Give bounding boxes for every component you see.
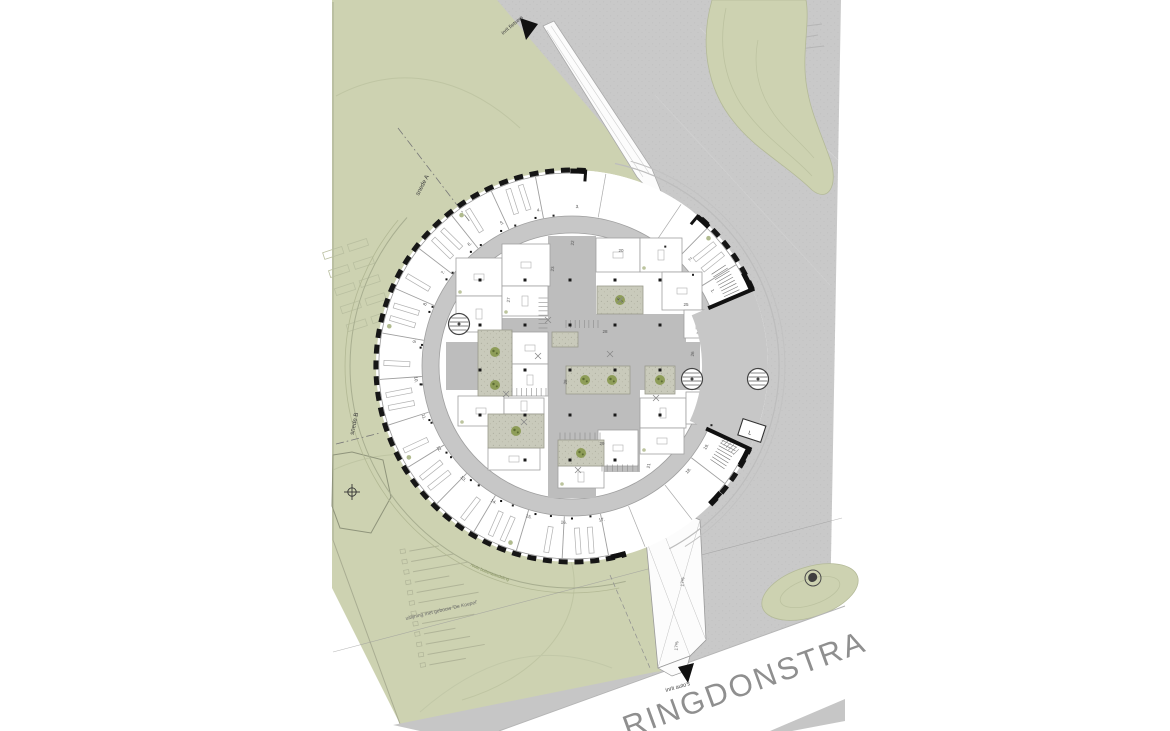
door-dot [535, 217, 537, 219]
core-room-number: 26 [690, 351, 695, 357]
corridor-door-dot [553, 215, 555, 217]
core-room [640, 238, 682, 272]
plant [387, 324, 392, 329]
gap-wall [585, 169, 586, 181]
ring-room-number: 3. [576, 204, 580, 209]
plant [407, 455, 412, 460]
column-dot [659, 324, 662, 327]
ring-room-furniture [384, 360, 410, 366]
column-dot [479, 414, 482, 417]
corridor-door-dot [478, 484, 480, 486]
column-dot [524, 414, 527, 417]
ring-room-number: 10. [413, 376, 419, 383]
corridor-door-dot [550, 515, 552, 517]
column-dot [479, 279, 482, 282]
column-dot [569, 459, 572, 462]
column-dot [479, 369, 482, 372]
door-dot [428, 311, 430, 313]
core-room [488, 448, 540, 470]
core-room [558, 466, 604, 488]
solid-wall-cap [570, 171, 585, 172]
plant [504, 310, 508, 314]
core-room [596, 238, 640, 272]
ring-room-number: 16. [561, 520, 568, 525]
column-dot [479, 324, 482, 327]
core-room-number: 27 [506, 297, 511, 303]
column-dot [614, 279, 617, 282]
column-dot [524, 279, 527, 282]
door-dot [420, 347, 422, 349]
plant [460, 420, 464, 424]
corridor-door-dot [450, 456, 452, 458]
door-dot [500, 230, 502, 232]
core-room [504, 398, 544, 414]
column-dot [569, 279, 572, 282]
corridor-door-dot [452, 272, 454, 274]
column-dot [614, 324, 617, 327]
corridor-door-dot [421, 383, 423, 385]
corridor-door-dot [692, 274, 694, 276]
core-room-number: 28 [602, 329, 608, 334]
core-room [512, 364, 548, 396]
core-room-number: 29 [599, 441, 605, 446]
tree [607, 375, 617, 385]
core-room-number: 28 [563, 379, 568, 385]
door-dot [428, 419, 430, 421]
tree [580, 375, 590, 385]
core-room-number: 23 [550, 266, 555, 272]
door-dot [446, 278, 448, 280]
core-room-number: 25 [683, 302, 689, 307]
corridor-door-dot [431, 422, 433, 424]
circulation-cross [596, 314, 686, 342]
corridor-door-dot [421, 344, 423, 346]
column-dot [614, 414, 617, 417]
column-dot [569, 369, 572, 372]
door-dot [500, 500, 502, 502]
site-plan-drawing: RINGDONSTRA 1.2.3.4.5.6.7.8.9.10.11.12.1… [0, 0, 1170, 731]
tree [490, 380, 500, 390]
column-dot [659, 279, 662, 282]
tree [576, 448, 586, 458]
core-room [640, 398, 686, 428]
core-room [456, 258, 502, 296]
corridor-door-dot [710, 424, 712, 426]
column-dot [569, 324, 572, 327]
core-room [640, 428, 684, 454]
door-dot [470, 251, 472, 253]
ring-room-number: 9. [412, 339, 418, 344]
column-dot [524, 369, 527, 372]
corridor-door-dot [664, 246, 666, 248]
plant [508, 540, 513, 545]
plant [459, 213, 464, 218]
core-room [512, 332, 548, 364]
corridor-door-dot [589, 515, 591, 517]
core-room-number: 22 [570, 240, 575, 246]
plant [642, 266, 646, 270]
door-dot [445, 452, 447, 454]
plant [458, 290, 462, 294]
plant [706, 236, 711, 241]
core-room [662, 272, 702, 310]
plant [642, 448, 646, 452]
column-dot [614, 459, 617, 462]
column-dot [524, 324, 527, 327]
corridor-door-dot [514, 225, 516, 227]
column-dot [659, 414, 662, 417]
column-dot [569, 414, 572, 417]
column-dot [524, 459, 527, 462]
corridor-door-dot [480, 244, 482, 246]
column-dot [614, 369, 617, 372]
tree [490, 347, 500, 357]
door-dot [534, 513, 536, 515]
corridor-door-dot [512, 504, 514, 506]
door-dot [571, 518, 573, 520]
column-dot [659, 369, 662, 372]
tree [655, 375, 665, 385]
plant [560, 482, 564, 486]
page: RINGDONSTRA 1.2.3.4.5.6.7.8.9.10.11.12.1… [0, 0, 1170, 731]
tree [511, 426, 521, 436]
corridor-door-dot [432, 306, 434, 308]
core-room-number: 20 [618, 248, 624, 253]
door-dot [470, 479, 472, 481]
